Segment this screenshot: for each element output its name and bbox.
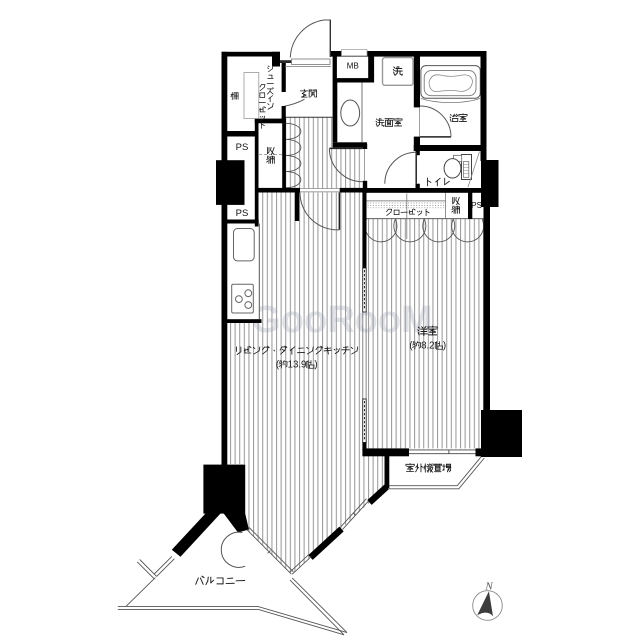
svg-text:): ) xyxy=(443,341,446,352)
svg-text:8.2: 8.2 xyxy=(421,341,434,352)
svg-text:PS: PS xyxy=(236,208,249,219)
svg-text:PS: PS xyxy=(236,142,249,153)
svg-text:): ) xyxy=(314,360,317,371)
svg-text:13.9: 13.9 xyxy=(288,360,307,371)
svg-text:PS: PS xyxy=(471,201,482,210)
svg-text:N: N xyxy=(484,581,493,593)
svg-text:MB: MB xyxy=(347,62,359,71)
